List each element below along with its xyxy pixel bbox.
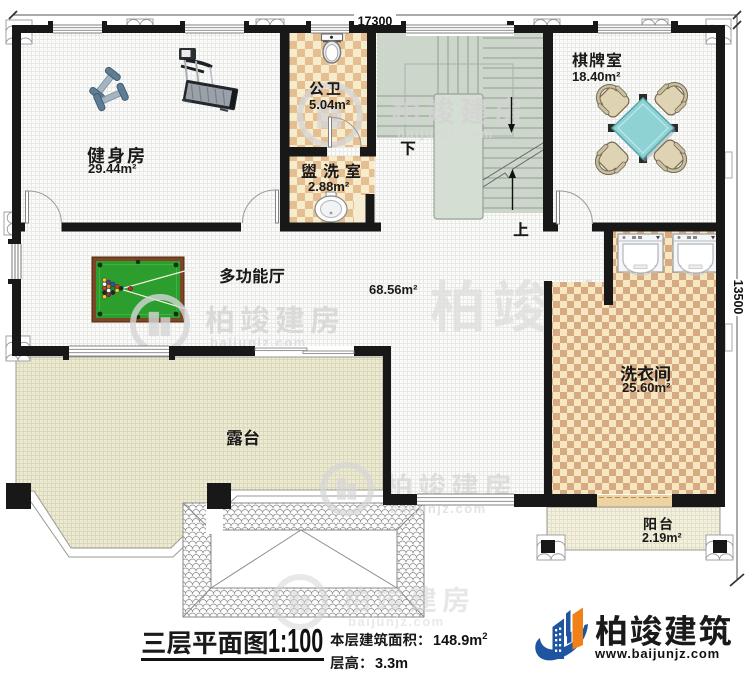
svg-text:1:100: 1:100: [268, 622, 323, 659]
svg-text:148.9m2: 148.9m2: [433, 631, 487, 649]
svg-text:17300: 17300: [358, 15, 393, 29]
svg-text:25.60m²: 25.60m²: [622, 380, 671, 395]
svg-text:13500: 13500: [731, 280, 745, 315]
svg-text:29.44m²: 29.44m²: [88, 161, 137, 176]
svg-text:68.56m²: 68.56m²: [369, 282, 418, 297]
svg-text:www.baijunjz.com: www.baijunjz.com: [594, 646, 720, 661]
svg-text:18.40m²: 18.40m²: [572, 69, 621, 84]
svg-text:3.3m: 3.3m: [375, 656, 408, 672]
svg-text:2.88m²: 2.88m²: [308, 179, 350, 194]
svg-text:5.04m²: 5.04m²: [309, 97, 351, 112]
svg-text:2.19m²: 2.19m²: [642, 531, 682, 545]
svg-text:baijunjz.com: baijunjz.com: [348, 614, 445, 629]
svg-text:baijunjz.com: baijunjz.com: [397, 126, 494, 141]
